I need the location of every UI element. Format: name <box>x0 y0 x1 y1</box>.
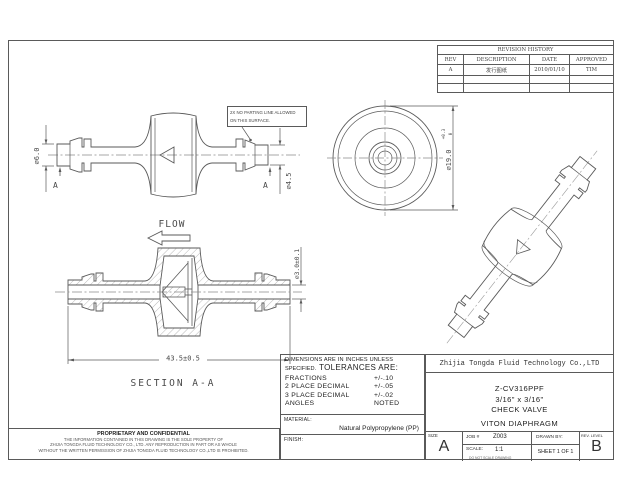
scale-note: DO NOT SCALE DRAWING <box>469 456 511 460</box>
finish-label: FINISH: <box>281 435 424 443</box>
finish-section: FINISH: <box>281 434 424 461</box>
material-section: MATERIAL: Natural Polypropylene (PP) <box>281 414 424 434</box>
revision-table-title: REVISION HISTORY <box>438 46 613 54</box>
dim-body-tol-upper: +0.3 <box>441 128 447 139</box>
revision-date-value: 2010/01/10 <box>530 65 570 75</box>
tolerance-row-label: ANGLES <box>285 400 314 407</box>
drawing-sheet: ⌀6.0 ⌀4.5 A A ⌀19.0 +0.3 0 <box>0 0 625 500</box>
front-view <box>327 100 458 216</box>
rev-level-cell: REV. LEVEL B <box>580 432 613 461</box>
section-view <box>55 247 306 364</box>
section-cut-arrows <box>59 167 272 176</box>
note-line-1: 2X NO PARTING LINE ALLOWED <box>230 108 304 117</box>
company-name: Zhijia Tongda Fluid Technology Co.,LTD <box>426 355 613 373</box>
dim-length-label: 43.5±0.5 <box>166 355 200 363</box>
note-leader <box>242 127 252 141</box>
proprietary-line-3: WITHOUT THE WRITTEN PERMISSION OF ZHIJIA… <box>8 448 279 453</box>
tolerance-row-value: NOTED <box>374 400 418 407</box>
section-mark-left: A <box>53 181 58 190</box>
job-value: Z003 <box>493 434 507 440</box>
revision-empty-row <box>438 84 613 92</box>
proprietary-notice: PROPRIETARY AND CONFIDENTIAL THE INFORMA… <box>8 428 280 460</box>
tolerance-row: FRACTIONS +/-.10 <box>281 373 424 382</box>
tolerance-row-value: +/-.05 <box>374 383 418 390</box>
dim-body-tol-lower: 0 <box>448 132 454 135</box>
revision-description-value: 发行图纸 <box>464 65 530 75</box>
flow-arrow <box>148 231 190 245</box>
flow-label: FLOW <box>159 219 186 230</box>
dim-45-graphics <box>270 128 285 194</box>
note-line-2: ON THIS SURFACE. <box>230 117 304 125</box>
part-diaphragm: VITON DIAPHRAGM <box>426 419 613 428</box>
revision-history-table: REVISION HISTORY REV DESCRIPTION DATE AP… <box>437 45 614 93</box>
tolerance-row: 3 PLACE DECIMAL +/-.02 <box>281 390 424 399</box>
tolerance-row: 2 PLACE DECIMAL +/-.05 <box>281 382 424 391</box>
tolerance-heading-2b: TOLERANCES ARE: <box>319 363 398 372</box>
revision-approved-value: TIM <box>570 65 613 75</box>
dim-tip-left-label: ⌀6.0 <box>33 148 41 165</box>
job-label: JOB # <box>466 435 479 440</box>
revision-col-description: DESCRIPTION <box>464 55 530 64</box>
drawn-sheet-cell: DRAWN BY: SHEET 1 OF 1 <box>532 432 580 461</box>
parting-line-note: 2X NO PARTING LINE ALLOWED ON THIS SURFA… <box>227 106 307 127</box>
revision-col-rev: REV <box>438 55 464 64</box>
scale-value: 1:1 <box>495 447 503 453</box>
section-view-title: SECTION A-A <box>131 378 216 389</box>
part-size-spec: 3/16" x 3/16" <box>426 395 613 404</box>
job-scale-cell: JOB # Z003 SCALE: 1:1 DO NOT SCALE DRAWI… <box>463 432 532 461</box>
material-value: Natural Polypropylene (PP) <box>339 425 419 432</box>
title-block: Zhijia Tongda Fluid Technology Co.,LTD Z… <box>425 354 614 460</box>
size-cell: SIZE A <box>426 432 463 461</box>
rev-level-value: B <box>580 438 613 456</box>
dim-bore-label: ⌀3.0±0.1 <box>294 249 301 280</box>
sheet-number: SHEET 1 OF 1 <box>532 449 579 455</box>
tolerance-block: DIMENSIONS ARE IN INCHES UNLESS SPECIFIE… <box>280 354 425 460</box>
title-block-bottom-row: SIZE A JOB # Z003 SCALE: 1:1 DO NOT SCAL… <box>426 431 613 461</box>
section-mark-right: A <box>263 181 268 190</box>
part-name: CHECK VALVE <box>426 405 613 414</box>
revision-empty-row <box>438 76 613 84</box>
dim-tip-right-label: ⌀4.5 <box>285 173 293 190</box>
part-number: Z-CV316PPF <box>426 384 613 393</box>
tolerance-row-value: +/-.02 <box>374 392 418 399</box>
tolerance-row: ANGLES NOTED <box>281 399 424 408</box>
drawn-by-label: DRAWN BY: <box>536 435 563 440</box>
material-label: MATERIAL: <box>281 415 424 423</box>
scale-label: SCALE: <box>466 447 483 452</box>
tolerance-heading-2a: SPECIFIED. <box>285 366 316 372</box>
tolerance-row-label: FRACTIONS <box>285 375 327 382</box>
tolerance-row-label: 3 PLACE DECIMAL <box>285 392 350 399</box>
revision-col-approved: APPROVED <box>570 55 613 64</box>
tolerance-row-value: +/-.10 <box>374 375 418 382</box>
size-value: A <box>426 438 462 456</box>
revision-col-date: DATE <box>530 55 570 64</box>
tolerance-row-label: 2 PLACE DECIMAL <box>285 383 350 390</box>
tolerance-heading-1: DIMENSIONS ARE IN INCHES UNLESS <box>281 355 424 363</box>
revision-rev-value: A <box>438 65 464 75</box>
revision-row-a: A 发行图纸 2010/01/10 TIM <box>438 65 613 76</box>
dim-body-label: ⌀19.0 <box>445 149 453 170</box>
